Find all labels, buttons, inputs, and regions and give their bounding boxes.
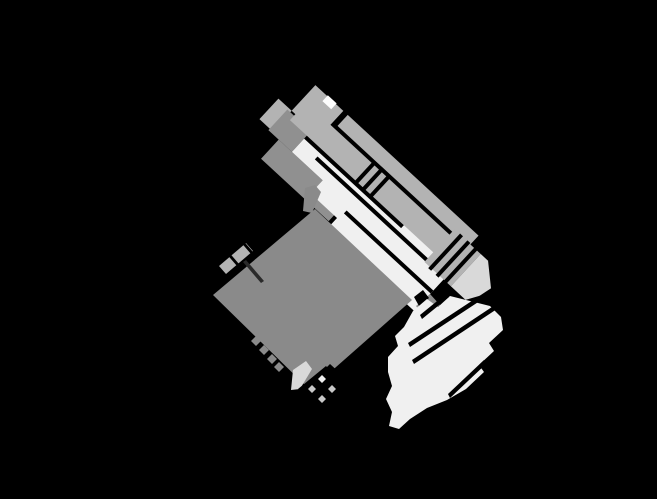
technical-drawing (0, 0, 657, 499)
